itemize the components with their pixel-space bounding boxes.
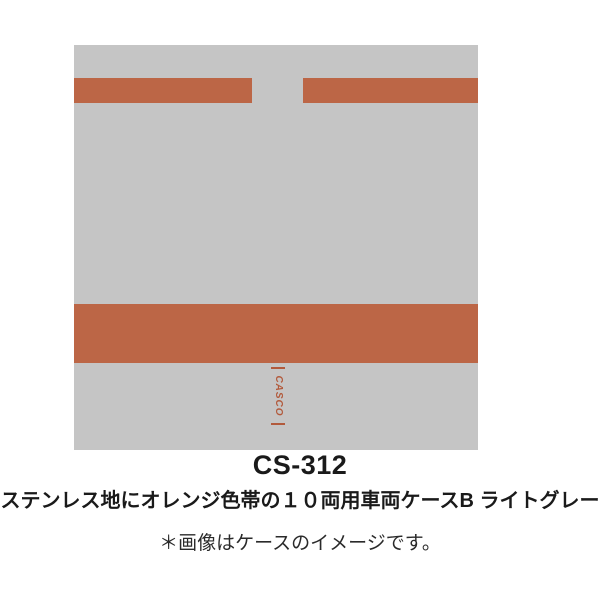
casco-logo: CASCO	[270, 367, 286, 425]
product-description: ステンレス地にオレンジ色帯の１０両用車両ケースB ライトグレー	[0, 488, 600, 514]
image-note: ＊画像はケースのイメージです。	[0, 531, 600, 557]
case-body: CASCO	[74, 45, 478, 450]
casco-logo-text: CASCO	[271, 367, 285, 425]
orange-band-bottom	[74, 304, 478, 363]
product-page: CASCO CS-312 ステンレス地にオレンジ色帯の１０両用車両ケースB ライ…	[0, 0, 600, 600]
product-image: CASCO	[0, 0, 600, 450]
model-number: CS-312	[0, 449, 600, 481]
orange-band-top-right	[303, 78, 478, 103]
orange-band-top-left	[74, 78, 252, 103]
